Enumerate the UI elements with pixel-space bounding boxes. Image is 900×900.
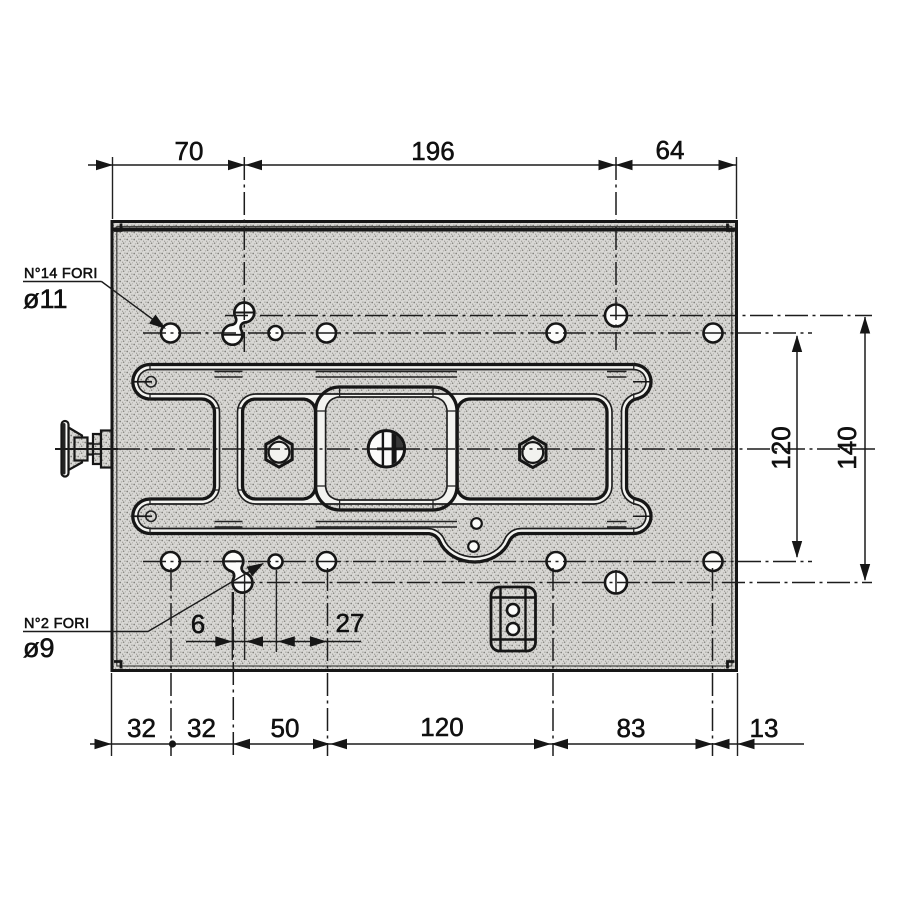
svg-text:120: 120 [420,712,463,742]
svg-text:83: 83 [617,713,646,743]
svg-text:N°14 FORI: N°14 FORI [24,266,98,282]
svg-text:N°2 FORI: N°2 FORI [24,616,89,632]
svg-text:140: 140 [832,426,862,469]
svg-text:120: 120 [766,426,796,469]
svg-text:ø11: ø11 [23,284,68,314]
svg-text:ø9: ø9 [23,633,55,663]
svg-text:64: 64 [656,135,685,165]
svg-text:50: 50 [271,713,300,743]
svg-text:27: 27 [336,608,365,638]
svg-text:32: 32 [127,713,156,743]
svg-text:13: 13 [750,713,779,743]
svg-text:32: 32 [187,713,216,743]
svg-text:70: 70 [175,136,204,166]
svg-text:6: 6 [191,609,205,639]
svg-text:196: 196 [411,136,454,166]
